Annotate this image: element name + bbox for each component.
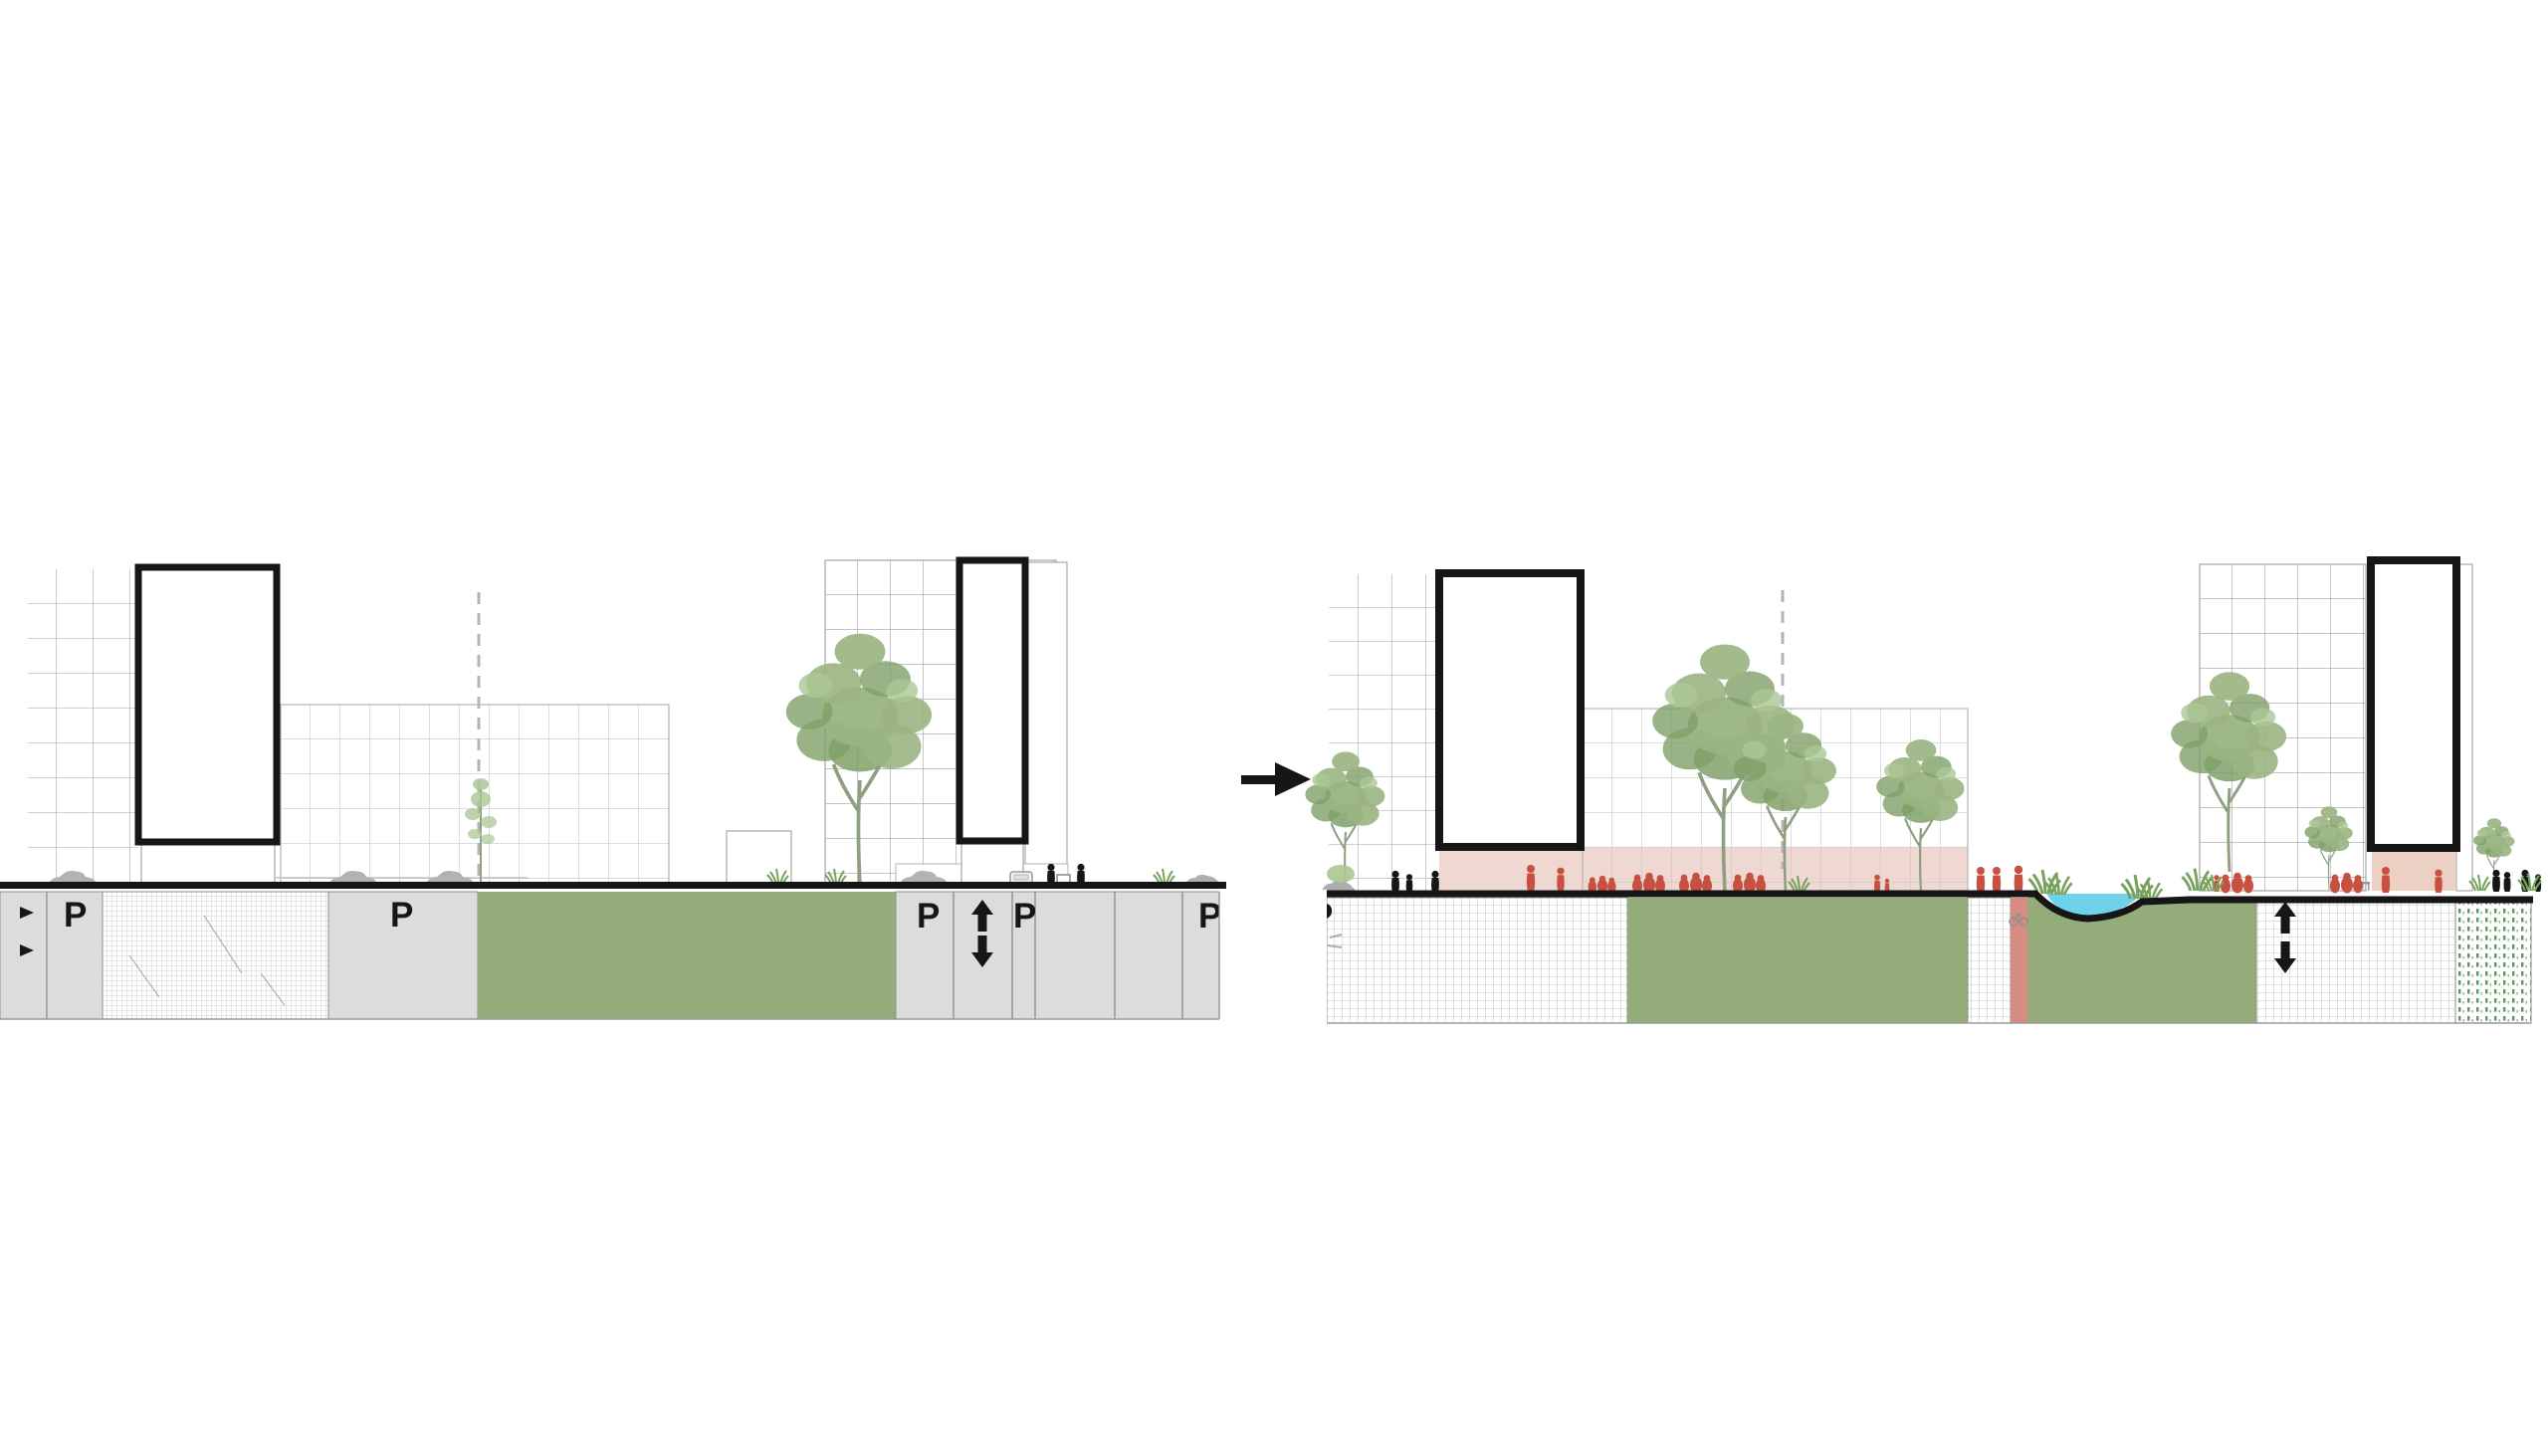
pedestrian-icon — [2504, 872, 2511, 892]
red-person-icon — [1557, 868, 1564, 891]
tower-outline — [959, 560, 1025, 841]
section-diagrams: P P P P P — [0, 0, 2548, 1456]
red-person-icon — [1977, 867, 1985, 893]
parking-garage — [896, 892, 1219, 1019]
transform-arrow-icon — [1241, 762, 1311, 796]
red-people-group-icon — [1733, 873, 1766, 894]
tower-outline — [1439, 573, 1581, 847]
red-person-icon — [1874, 875, 1880, 893]
red-person-icon — [2435, 870, 2442, 893]
red-person-icon — [2382, 867, 2390, 893]
pedestrian-icon — [2492, 870, 2500, 892]
tower-outline — [138, 567, 277, 842]
building-grid — [28, 569, 138, 886]
edge-crop — [1219, 890, 1249, 1029]
bush-icon — [1327, 865, 1355, 883]
parking-label: P — [64, 896, 87, 935]
hatched-soil — [1327, 898, 1627, 1023]
red-people-group-icon — [1632, 873, 1665, 894]
tower-base — [141, 842, 275, 884]
green-soil — [478, 892, 896, 1019]
before-after-street-sections: P P P P P — [0, 0, 2548, 1456]
right-section-diagram: P — [1294, 560, 2541, 1029]
pedestrian-icon — [1391, 871, 1399, 893]
ground-line — [0, 882, 1226, 889]
red-people-group-icon — [2330, 873, 2363, 894]
hatched-soil — [103, 892, 328, 1019]
red-person-icon — [2015, 866, 2023, 893]
red-people-group-icon — [2221, 873, 2253, 894]
right-buildings — [1329, 560, 2472, 891]
pedestrian-icon — [1406, 874, 1413, 893]
parking-label: P — [1198, 897, 1221, 936]
parking-label: P — [917, 897, 940, 936]
pedestrian-icon — [1431, 871, 1439, 893]
parking-label: P — [1013, 897, 1036, 936]
parking-label: P — [390, 896, 413, 935]
parking-cell — [0, 892, 103, 1019]
right-underground — [1327, 895, 2531, 1023]
red-people-group-icon — [1679, 873, 1712, 894]
cart-icon — [1057, 875, 1070, 883]
green-soil — [1627, 898, 1968, 1023]
tower-outline — [2371, 560, 2456, 848]
building-annex-outline — [1025, 562, 1067, 886]
hatched-soil — [1968, 898, 2011, 1023]
edge-crop — [1294, 890, 1327, 1029]
red-person-icon — [1527, 865, 1535, 891]
planted-soil-dots — [2455, 900, 2531, 1023]
red-person-icon — [1993, 867, 2001, 893]
left-section-diagram: P P P P P — [0, 560, 1249, 1029]
